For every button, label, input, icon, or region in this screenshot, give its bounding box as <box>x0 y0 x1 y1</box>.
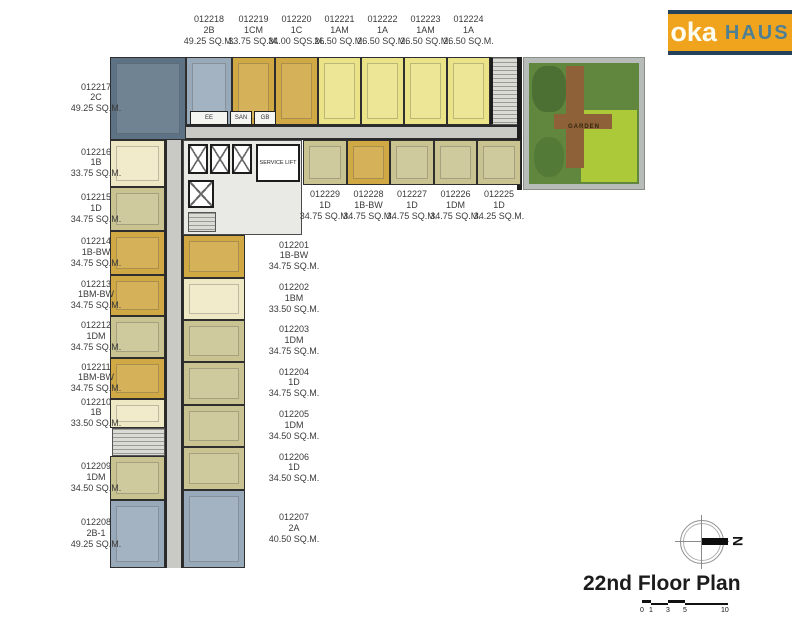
north-letter: N <box>730 536 746 546</box>
scale-tick: 3 <box>666 607 670 614</box>
north-arrow-compass: N <box>680 520 724 564</box>
unit-number: 012214 <box>81 236 111 246</box>
lift-1 <box>188 144 208 174</box>
unit-type: 2B-1 <box>86 528 105 538</box>
unit-area: 34.50 SQ.M. <box>269 473 320 483</box>
unit-type: 1BM-BW <box>78 289 114 299</box>
garden-bush <box>532 66 566 112</box>
left-wing-stairs <box>112 428 165 456</box>
unit-type: 2A <box>288 523 299 533</box>
unit-number: 012203 <box>279 324 309 334</box>
unit-label-012208: 0122082B-149.25 SQ.M. <box>44 517 148 550</box>
unit-number: 012201 <box>279 240 309 250</box>
logo-brand-primary: oka <box>670 19 717 46</box>
unit-number: 012202 <box>279 282 309 292</box>
unit-label-012207: 0122072A40.50 SQ.M. <box>250 512 338 545</box>
unit-area: 34.75 SQ.M. <box>71 300 122 310</box>
scale-tick: 10 <box>721 607 729 614</box>
unit-012223 <box>404 57 447 125</box>
unit-area: 34.75 SQ.M. <box>71 383 122 393</box>
corridor-top-wing <box>186 125 522 140</box>
unit-area: 34.75 SQ.M. <box>269 388 320 398</box>
unit-012226 <box>434 140 477 185</box>
unit-type: 1B <box>90 407 101 417</box>
unit-012221 <box>318 57 361 125</box>
unit-type: 1D <box>288 377 300 387</box>
scale-bar: 0 1 3 5 10 <box>642 600 728 616</box>
unit-number: 012205 <box>279 409 309 419</box>
lift-3 <box>232 144 252 174</box>
unit-type: 1DM <box>284 335 303 345</box>
lift-2 <box>210 144 230 174</box>
unit-label-012206: 0122061D34.50 SQ.M. <box>250 452 338 485</box>
unit-012202 <box>183 278 245 320</box>
unit-label-012216: 0122161B33.75 SQ.M. <box>44 147 148 180</box>
unit-label-012204: 0122041D34.75 SQ.M. <box>250 367 338 400</box>
unit-type: 1D <box>90 203 102 213</box>
unit-area: 49.25 SQ.M. <box>71 539 122 549</box>
scale-tick: 5 <box>683 607 687 614</box>
room-san: SAN <box>230 111 252 125</box>
unit-area: 26.50 SQ.M. <box>443 36 494 46</box>
scale-segment <box>642 600 651 603</box>
unit-number: 012204 <box>279 367 309 377</box>
unit-label-012215: 0122151D34.75 SQ.M. <box>44 192 148 225</box>
unit-type: 1DM <box>284 420 303 430</box>
lift-4 <box>188 180 214 208</box>
unit-area: 49.25 SQ.M. <box>71 103 122 113</box>
garden-label: GARDEN <box>558 124 610 130</box>
garden: GARDEN <box>523 57 645 190</box>
scale-tick: 0 <box>640 607 644 614</box>
unit-label-012203: 0122031DM34.75 SQ.M. <box>250 324 338 357</box>
unit-number: 012213 <box>81 279 111 289</box>
unit-012229 <box>303 140 347 185</box>
oka-haus-logo: oka HAUS <box>668 10 792 55</box>
unit-type: 1D <box>288 462 300 472</box>
unit-area: 34.75 SQ.M. <box>269 346 320 356</box>
unit-area: 34.75 SQ.M. <box>71 214 122 224</box>
unit-area: 34.25 SQ.M. <box>474 211 525 221</box>
unit-number: 012225 <box>484 189 514 199</box>
core-stairs <box>188 212 216 232</box>
unit-area: 34.75 SQ.M. <box>269 261 320 271</box>
scale-segment <box>651 603 668 605</box>
unit-type: 2C <box>90 92 102 102</box>
room-san-label: SAN <box>235 115 247 121</box>
service-lift-label: SERVICE LIFT <box>260 160 297 166</box>
corridor-left-wing <box>165 140 183 568</box>
unit-012204 <box>183 362 245 405</box>
unit-type: 1BM-BW <box>78 372 114 382</box>
unit-number: 012209 <box>81 461 111 471</box>
unit-label-012211: 0122111BM-BW34.75 SQ.M. <box>44 362 148 395</box>
unit-area: 40.50 SQ.M. <box>269 534 320 544</box>
unit-number: 012211 <box>81 362 110 372</box>
unit-area: 34.75 SQ.M. <box>71 342 122 352</box>
unit-012205 <box>183 405 245 447</box>
unit-area: 34.75 SQ.M. <box>71 258 122 268</box>
unit-012207 <box>183 490 245 568</box>
unit-label-012205: 0122051DM34.50 SQ.M. <box>250 409 338 442</box>
unit-area: 33.50 SQ.M. <box>269 304 320 314</box>
unit-012203 <box>183 320 245 362</box>
unit-label-012225: 0122251D34.25 SQ.M. <box>457 189 541 222</box>
unit-number: 012215 <box>81 192 111 202</box>
unit-label-012213: 0122131BM-BW34.75 SQ.M. <box>44 279 148 312</box>
service-lift-room: SERVICE LIFT <box>256 144 300 182</box>
end-stairs <box>490 57 518 125</box>
unit-label-012224: 0122241A26.50 SQ.M. <box>427 14 511 47</box>
unit-area: 34.50 SQ.M. <box>71 483 122 493</box>
unit-012220 <box>275 57 318 125</box>
unit-label-012201: 0122011B-BW34.75 SQ.M. <box>250 240 338 273</box>
unit-area: 34.50 SQ.M. <box>269 431 320 441</box>
unit-number: 012206 <box>279 452 309 462</box>
unit-number: 012207 <box>279 512 309 522</box>
unit-area: 33.50 SQ.M. <box>71 418 122 428</box>
room-ee-label: EE <box>205 115 213 121</box>
north-pointer-bar <box>702 538 728 545</box>
scale-segment <box>685 603 728 605</box>
unit-012222 <box>361 57 404 125</box>
unit-012206 <box>183 447 245 490</box>
unit-012228 <box>347 140 390 185</box>
scale-segment <box>668 600 685 603</box>
unit-012225 <box>477 140 521 185</box>
unit-label-012202: 0122021BM33.50 SQ.M. <box>250 282 338 315</box>
unit-type: 1D <box>493 200 505 210</box>
unit-type: 1B-BW <box>82 247 111 257</box>
unit-label-012212: 0122121DM34.75 SQ.M. <box>44 320 148 353</box>
unit-012227 <box>390 140 434 185</box>
unit-012201 <box>183 235 245 278</box>
room-ee: EE <box>190 111 228 125</box>
unit-label-012217: 0122172C49.25 SQ.M. <box>44 82 148 115</box>
unit-number: 012208 <box>81 517 111 527</box>
unit-number: 012217 <box>81 82 111 92</box>
unit-number: 012224 <box>453 14 483 24</box>
unit-type: 1BM <box>285 293 304 303</box>
unit-area: 33.75 SQ.M. <box>71 168 122 178</box>
room-gb: GB <box>254 111 276 125</box>
unit-label-012210: 0122101B33.50 SQ.M. <box>44 397 148 430</box>
unit-number: 012210 <box>81 397 111 407</box>
unit-type: 1DM <box>86 331 105 341</box>
unit-012224 <box>447 57 490 125</box>
unit-number: 012216 <box>81 147 111 157</box>
unit-label-012214: 0122141B-BW34.75 SQ.M. <box>44 236 148 269</box>
unit-type: 1A <box>463 25 474 35</box>
unit-type: 1DM <box>86 472 105 482</box>
logo-brand-secondary: HAUS <box>725 23 790 43</box>
unit-type: 1B <box>90 157 101 167</box>
unit-type: 1B-BW <box>280 250 309 260</box>
unit-label-012209: 0122091DM34.50 SQ.M. <box>44 461 148 494</box>
room-gb-label: GB <box>261 115 270 121</box>
unit-number: 012212 <box>81 320 111 330</box>
garden-bush <box>534 137 564 177</box>
page-title: 22nd Floor Plan <box>583 572 741 596</box>
scale-tick: 1 <box>649 607 653 614</box>
